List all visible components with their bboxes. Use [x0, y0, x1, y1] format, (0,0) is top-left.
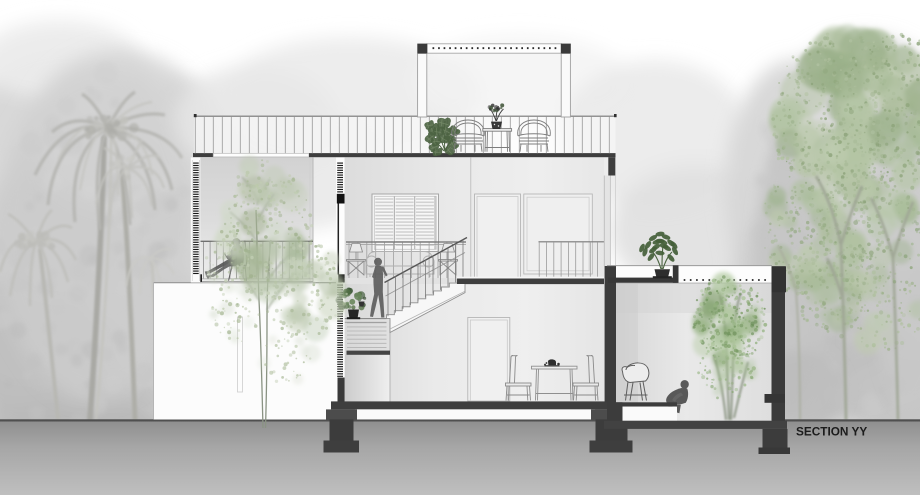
svg-text:SECTION YY: SECTION YY: [796, 425, 867, 439]
